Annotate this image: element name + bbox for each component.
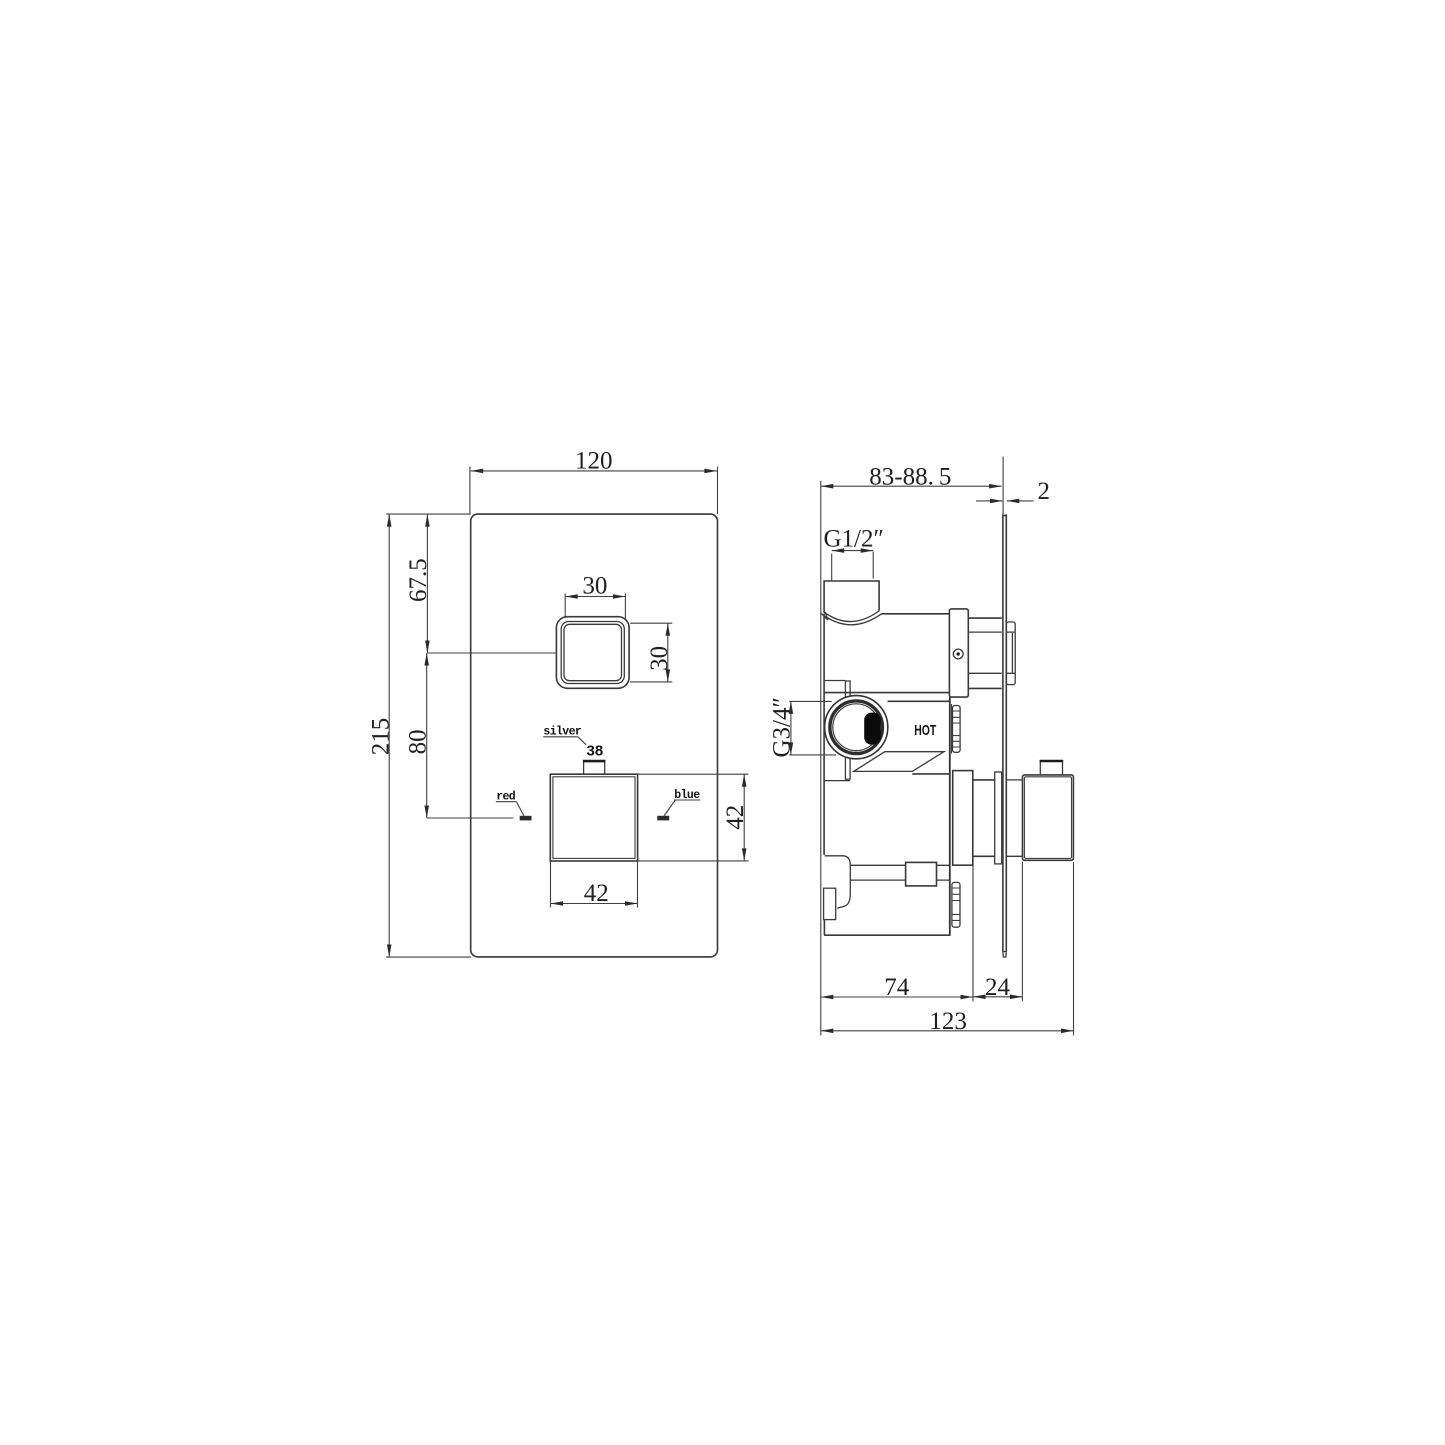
svg-text:42: 42 bbox=[584, 880, 609, 907]
svg-text:2: 2 bbox=[1038, 478, 1051, 505]
svg-text:38: 38 bbox=[587, 742, 604, 759]
svg-text:120: 120 bbox=[575, 447, 613, 474]
svg-text:67.5: 67.5 bbox=[405, 558, 432, 602]
svg-text:HOT: HOT bbox=[914, 722, 936, 738]
svg-text:30: 30 bbox=[582, 572, 607, 599]
svg-text:83-88. 5: 83-88. 5 bbox=[869, 463, 951, 490]
svg-text:G3/4″: G3/4″ bbox=[768, 697, 795, 757]
svg-text:215: 215 bbox=[368, 718, 395, 756]
svg-text:74: 74 bbox=[884, 974, 910, 1001]
svg-text:G1/2″: G1/2″ bbox=[824, 526, 884, 553]
svg-text:80: 80 bbox=[405, 729, 432, 754]
svg-text:42: 42 bbox=[722, 805, 749, 830]
svg-text:24: 24 bbox=[985, 974, 1011, 1001]
svg-text:123: 123 bbox=[929, 1008, 967, 1035]
svg-text:30: 30 bbox=[646, 646, 673, 671]
